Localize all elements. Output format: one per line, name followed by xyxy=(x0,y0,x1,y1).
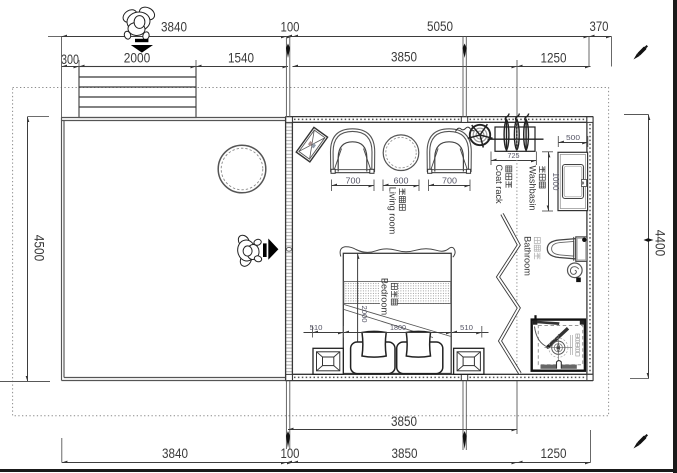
svg-text:3850: 3850 xyxy=(392,446,418,461)
svg-text:Living room: Living room xyxy=(388,187,398,235)
svg-text:500: 500 xyxy=(566,133,580,142)
svg-text:Washbasin: Washbasin xyxy=(528,165,538,210)
svg-text:3840: 3840 xyxy=(161,20,187,35)
svg-text:510: 510 xyxy=(460,323,473,332)
svg-text:Coat rack: Coat rack xyxy=(494,164,504,204)
svg-text:1540: 1540 xyxy=(228,50,254,65)
svg-text:1250: 1250 xyxy=(541,446,567,461)
svg-text:370: 370 xyxy=(590,19,609,34)
svg-text:1250: 1250 xyxy=(541,50,567,65)
svg-text:4400: 4400 xyxy=(653,230,668,257)
svg-text:725: 725 xyxy=(508,151,520,160)
svg-text:700: 700 xyxy=(442,176,457,186)
svg-text:3850: 3850 xyxy=(391,50,417,65)
svg-text:3850: 3850 xyxy=(391,414,417,429)
svg-text:5050: 5050 xyxy=(427,19,453,34)
svg-text:Bathroom: Bathroom xyxy=(523,236,533,276)
svg-text:300: 300 xyxy=(61,52,79,67)
svg-text:510: 510 xyxy=(310,323,323,332)
svg-text:600: 600 xyxy=(394,176,409,186)
svg-text:4500: 4500 xyxy=(32,235,47,262)
svg-text:2000: 2000 xyxy=(124,50,151,65)
svg-text:1800: 1800 xyxy=(390,323,406,332)
svg-text:100: 100 xyxy=(281,20,300,35)
svg-text:1000: 1000 xyxy=(551,173,560,192)
svg-text:100: 100 xyxy=(281,446,300,461)
svg-text:700: 700 xyxy=(346,176,361,186)
svg-text:3840: 3840 xyxy=(162,446,188,461)
svg-text:Bedroom: Bedroom xyxy=(380,278,390,316)
svg-text:2000: 2000 xyxy=(360,306,369,323)
